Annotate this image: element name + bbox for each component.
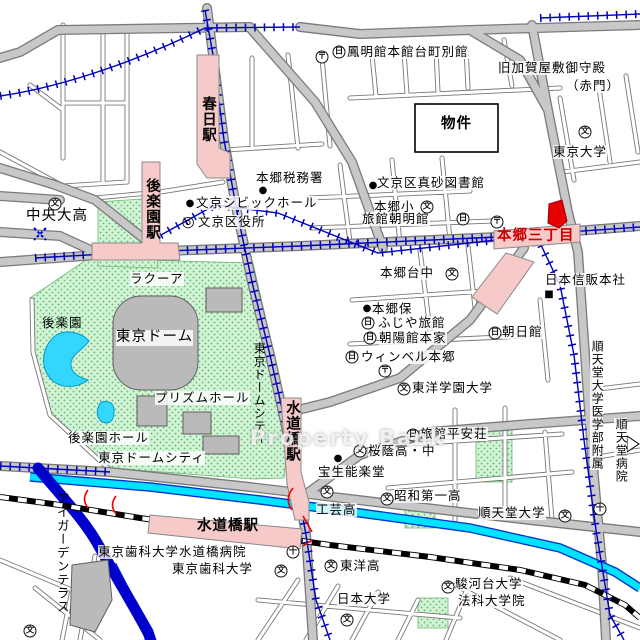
label-law-school: 法科大学院 bbox=[458, 594, 526, 608]
label-juntendo-hospital: 順天堂病院 bbox=[614, 418, 627, 483]
poi-dot: ● bbox=[186, 199, 195, 209]
label-winbell-hongo: ウィンベル本郷 bbox=[361, 350, 456, 364]
school-icon: 文 bbox=[321, 486, 334, 499]
school-icon: 文 bbox=[49, 198, 62, 211]
ward-office-icon: ◎ bbox=[181, 215, 194, 230]
ryokan-icon: 日 bbox=[333, 46, 346, 59]
post-office-icon: 〒 bbox=[491, 216, 504, 229]
poi-dot: ● bbox=[363, 304, 372, 314]
label-prism-hall: プリズムホール bbox=[155, 391, 250, 405]
poi-dot: ● bbox=[369, 181, 378, 191]
label-laqua: ラクーア bbox=[130, 272, 184, 286]
label-nihon-shinpan: 日本信販本社 bbox=[545, 273, 626, 287]
label-dental-hospital: 東京歯科大学水道橋病院 bbox=[98, 545, 247, 559]
label-hongo-tax-office: 本郷税務署 bbox=[256, 171, 324, 185]
label-bunkyo-ward-office: 文京区役所 bbox=[198, 215, 266, 229]
post-office-icon: 〒 bbox=[316, 51, 329, 64]
hospital-icon: 十 bbox=[594, 503, 607, 516]
ryokan-icon: 日 bbox=[364, 332, 377, 345]
poi-dot: ● bbox=[259, 186, 268, 196]
label-bunkyo-civic-hall: 文京シビックホール bbox=[196, 196, 318, 210]
label-hongo-nursery: 本郷保 bbox=[372, 302, 413, 316]
watermark: Property Bank bbox=[250, 426, 446, 450]
label-homeikan: 鳳明館本館台町別館 bbox=[347, 45, 469, 59]
label-korakuen-station: 後楽園駅 bbox=[143, 178, 159, 240]
label-property: 物件 bbox=[415, 117, 498, 133]
school-icon: 文 bbox=[398, 383, 411, 396]
label-juntendo-univ: 順天堂大学 bbox=[478, 506, 546, 520]
label-juntendo-med: 順天堂大学医学部附属 bbox=[590, 340, 603, 470]
label-akamon: （赤門） bbox=[566, 79, 620, 93]
ryokan-icon: 日 bbox=[489, 327, 502, 340]
label-toyo-gakuen-univ: 東洋学園大学 bbox=[412, 381, 493, 395]
label-tokyo-dome: 東京ドーム bbox=[116, 330, 193, 346]
label-dental-univ: 東京歯科大学 bbox=[172, 562, 253, 576]
label-chuo-dai-high: 中央大高 bbox=[26, 209, 88, 225]
label-kaga-yashiki: 旧加賀屋敷御守殿 bbox=[498, 61, 606, 75]
school-icon: 文 bbox=[442, 581, 455, 594]
school-icon: 文 bbox=[341, 614, 354, 627]
label-i-garden-terrace: アイガーデンテラス bbox=[55, 492, 69, 614]
label-kasuga-station: 春日駅 bbox=[199, 96, 215, 143]
label-hongo-sanchome-station: 本郷三丁目 bbox=[497, 229, 575, 245]
label-masago-library: 文京区真砂図書館 bbox=[377, 176, 485, 190]
school-icon: 文 bbox=[325, 560, 338, 573]
label-hongodai-jhs: 本郷台中 bbox=[380, 266, 434, 280]
label-dome-city: 東京ドームシティ bbox=[98, 451, 205, 465]
school-icon: 文 bbox=[421, 201, 434, 214]
label-suidobashi-jr-station: 水道橋駅 bbox=[197, 519, 259, 535]
school-icon: 文 bbox=[24, 625, 37, 638]
label-choyokan-honke: 朝陽館本家 bbox=[379, 331, 447, 345]
ryokan-icon: 日 bbox=[457, 213, 470, 226]
label-showa-daiichi: 昭和第一高 bbox=[394, 489, 462, 503]
hospital-icon: 十 bbox=[287, 546, 300, 559]
label-surugadai-univ: 駿河台大学 bbox=[455, 577, 523, 591]
ryokan-icon: 日 bbox=[346, 351, 359, 364]
korakuen-pond-small bbox=[97, 401, 114, 422]
label-kogei-high: 工芸高 bbox=[316, 503, 357, 517]
school-icon: 文 bbox=[381, 493, 394, 506]
label-hosho-noh: 宝生能楽堂 bbox=[318, 465, 386, 479]
school-icon: 文 bbox=[559, 510, 572, 523]
label-asahikan: 朝日館 bbox=[502, 325, 543, 339]
label-fujiya-ryokan: ふじや旅館 bbox=[378, 316, 446, 330]
label-korakuen-garden: 後楽園 bbox=[42, 316, 83, 330]
poi-square: ■ bbox=[544, 290, 553, 300]
school-icon: 文 bbox=[275, 565, 288, 578]
label-tokyo-university: 東京大学 bbox=[553, 145, 607, 159]
label-ryokan-chomeikan: 旅館朝明館 bbox=[362, 212, 430, 226]
poi-dot: ● bbox=[334, 454, 343, 464]
label-nihon-univ: 日本大学 bbox=[337, 592, 391, 606]
post-office-icon: 〒 bbox=[379, 365, 392, 378]
ryokan-icon: 日 bbox=[362, 317, 375, 330]
label-korakuen-hall: 後楽園ホール bbox=[68, 431, 149, 445]
school-icon: 文 bbox=[446, 268, 459, 281]
map-canvas: 文 文 文 文 文 文 文 文 文 文 文 文 文 文 十 十 〒 〒 〒 ◎ … bbox=[0, 0, 640, 640]
map-graphics bbox=[0, 0, 640, 640]
label-toyo-high: 東洋高 bbox=[340, 559, 381, 573]
school-icon: 文 bbox=[579, 126, 592, 139]
